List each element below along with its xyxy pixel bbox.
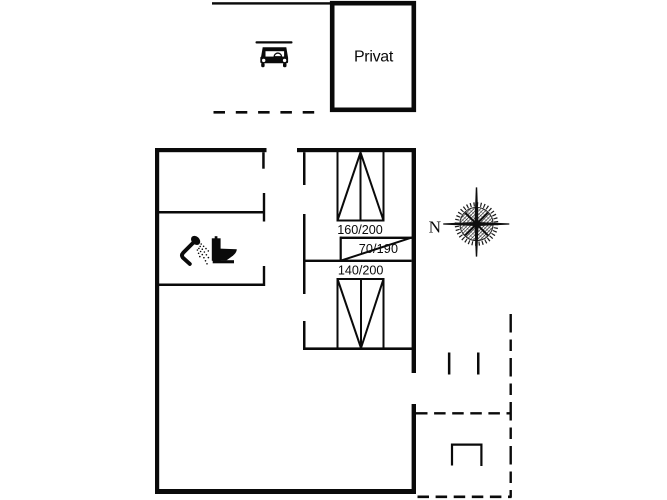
svg-text:Privat: Privat [354,48,394,65]
svg-text:160/200: 160/200 [337,223,383,237]
svg-text:70/190: 70/190 [359,242,398,256]
svg-text:140/200: 140/200 [338,264,384,278]
svg-text:N: N [429,218,442,237]
